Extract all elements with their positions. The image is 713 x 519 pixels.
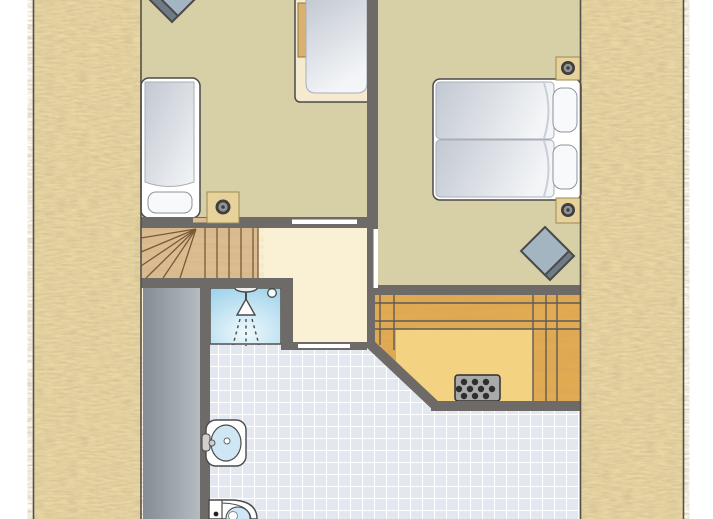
double-bed xyxy=(433,79,581,200)
floor-plan-svg xyxy=(0,0,713,519)
shower-cabin xyxy=(210,284,281,346)
mattress-lower xyxy=(436,140,554,197)
wall-storage-bottom xyxy=(431,401,581,411)
shower-drain-icon xyxy=(268,289,277,298)
toilet-flush-dot xyxy=(214,512,219,517)
wall-shower-right xyxy=(281,278,293,350)
floor-grate xyxy=(455,375,500,401)
roof-slope-right xyxy=(581,0,684,519)
ceiling-spot-bedroom-right-lower xyxy=(556,198,581,223)
wall-storage-left xyxy=(367,294,375,344)
pillow-upper xyxy=(553,88,577,132)
single-bed-top xyxy=(295,0,372,102)
mattress xyxy=(145,82,194,187)
ceiling-spot-bedroom-left xyxy=(207,192,239,223)
door-bathroom xyxy=(298,344,350,348)
mattress xyxy=(306,0,367,93)
wall-void-right xyxy=(200,288,210,519)
winder-staircase xyxy=(141,222,258,278)
ceiling-spot-bedroom-right-upper xyxy=(556,57,581,80)
door-bedroom-left xyxy=(292,220,357,225)
wall-bedroom-right-bottom xyxy=(367,285,581,295)
door-bedroom-right xyxy=(374,229,379,288)
pillow-lower xyxy=(553,145,577,189)
floor-plan-image xyxy=(0,0,713,519)
wall-under-stairs xyxy=(141,278,293,288)
mattress-upper xyxy=(436,82,554,139)
basin-drain-hole xyxy=(224,438,230,444)
washbasin xyxy=(202,420,246,466)
roof-slope-left xyxy=(33,0,141,519)
void-area xyxy=(143,288,200,519)
single-bed-left xyxy=(141,78,200,218)
pillow xyxy=(148,192,192,213)
